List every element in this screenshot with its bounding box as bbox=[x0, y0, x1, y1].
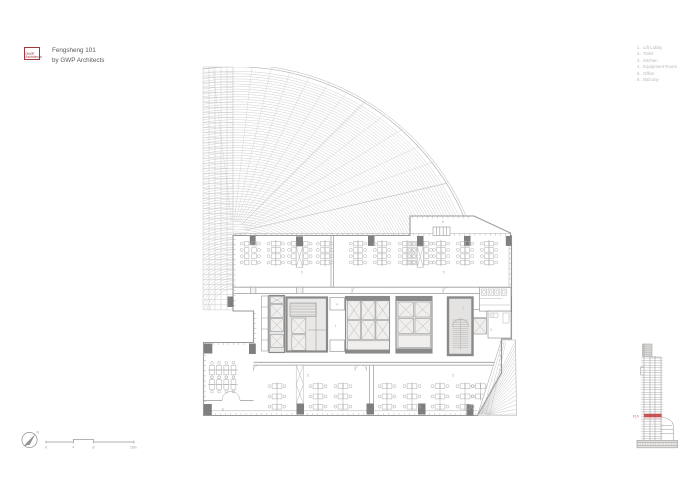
svg-text:4: 4 bbox=[73, 446, 75, 450]
svg-text:5: 5 bbox=[452, 374, 454, 378]
svg-text:F10: F10 bbox=[633, 414, 639, 418]
svg-text:16m: 16m bbox=[130, 446, 137, 450]
svg-text:5: 5 bbox=[443, 271, 445, 275]
svg-text:2: 2 bbox=[462, 306, 464, 310]
svg-text:8: 8 bbox=[93, 446, 95, 450]
svg-text:5: 5 bbox=[307, 374, 309, 378]
svg-text:0: 0 bbox=[45, 446, 47, 450]
svg-text:1: 1 bbox=[335, 324, 337, 328]
svg-text:6: 6 bbox=[442, 220, 444, 224]
svg-text:5: 5 bbox=[301, 271, 303, 275]
svg-text:N: N bbox=[37, 431, 40, 435]
svg-text:6: 6 bbox=[222, 408, 224, 412]
svg-text:4: 4 bbox=[336, 303, 338, 307]
svg-text:3: 3 bbox=[490, 328, 492, 332]
